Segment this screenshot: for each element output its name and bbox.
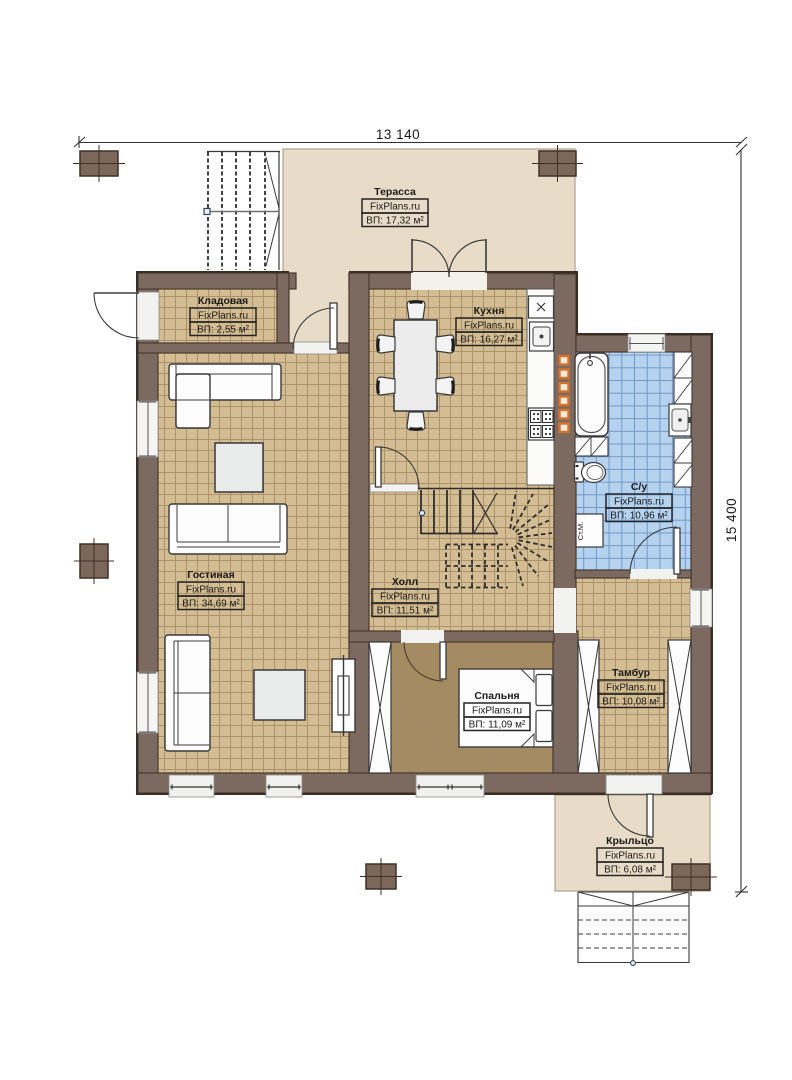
svg-text:ВП: 6,08 м²: ВП: 6,08 м² (604, 865, 657, 876)
svg-text:FixPlans.ru: FixPlans.ru (186, 585, 236, 596)
svg-text:Спальня: Спальня (474, 690, 519, 702)
svg-text:13 140: 13 140 (376, 127, 420, 142)
svg-text:Холл: Холл (392, 576, 418, 588)
svg-text:FixPlans.ru: FixPlans.ru (370, 202, 420, 213)
svg-text:ВП: 10,08 м²: ВП: 10,08 м² (602, 697, 660, 708)
svg-text:Крыльцо: Крыльцо (606, 835, 654, 847)
svg-text:Тамбур: Тамбур (612, 667, 650, 679)
svg-text:FixPlans.ru: FixPlans.ru (605, 851, 655, 862)
svg-text:Терасса: Терасса (374, 186, 416, 198)
svg-text:ВП: 16,27 м²: ВП: 16,27 м² (460, 335, 518, 346)
svg-text:FixPlans.ru: FixPlans.ru (472, 706, 522, 717)
svg-text:FixPlans.ru: FixPlans.ru (464, 321, 514, 332)
svg-text:С/у: С/у (631, 481, 648, 493)
svg-text:ВП: 11,51 м²: ВП: 11,51 м² (377, 606, 434, 617)
svg-text:FixPlans.ru: FixPlans.ru (606, 683, 656, 694)
svg-text:Кухня: Кухня (474, 305, 505, 317)
svg-text:ВП: 10,96 м²: ВП: 10,96 м² (610, 511, 668, 522)
svg-text:Гостиная: Гостиная (187, 569, 234, 581)
svg-text:ВП: 34,69 м²: ВП: 34,69 м² (182, 599, 240, 610)
svg-text:ВП: 17,32 м²: ВП: 17,32 м² (366, 216, 424, 227)
svg-text:ВП: 11,09 м²: ВП: 11,09 м² (469, 720, 526, 731)
svg-text:FixPlans.ru: FixPlans.ru (198, 311, 248, 322)
svg-text:Ст.М.: Ст.М. (576, 522, 585, 540)
svg-text:FixPlans.ru: FixPlans.ru (380, 592, 430, 603)
svg-text:Кладовая: Кладовая (198, 295, 248, 307)
svg-text:15 400: 15 400 (724, 498, 739, 542)
svg-text:FixPlans.ru: FixPlans.ru (614, 497, 664, 508)
svg-text:ВП: 2,55 м²: ВП: 2,55 м² (197, 325, 250, 336)
